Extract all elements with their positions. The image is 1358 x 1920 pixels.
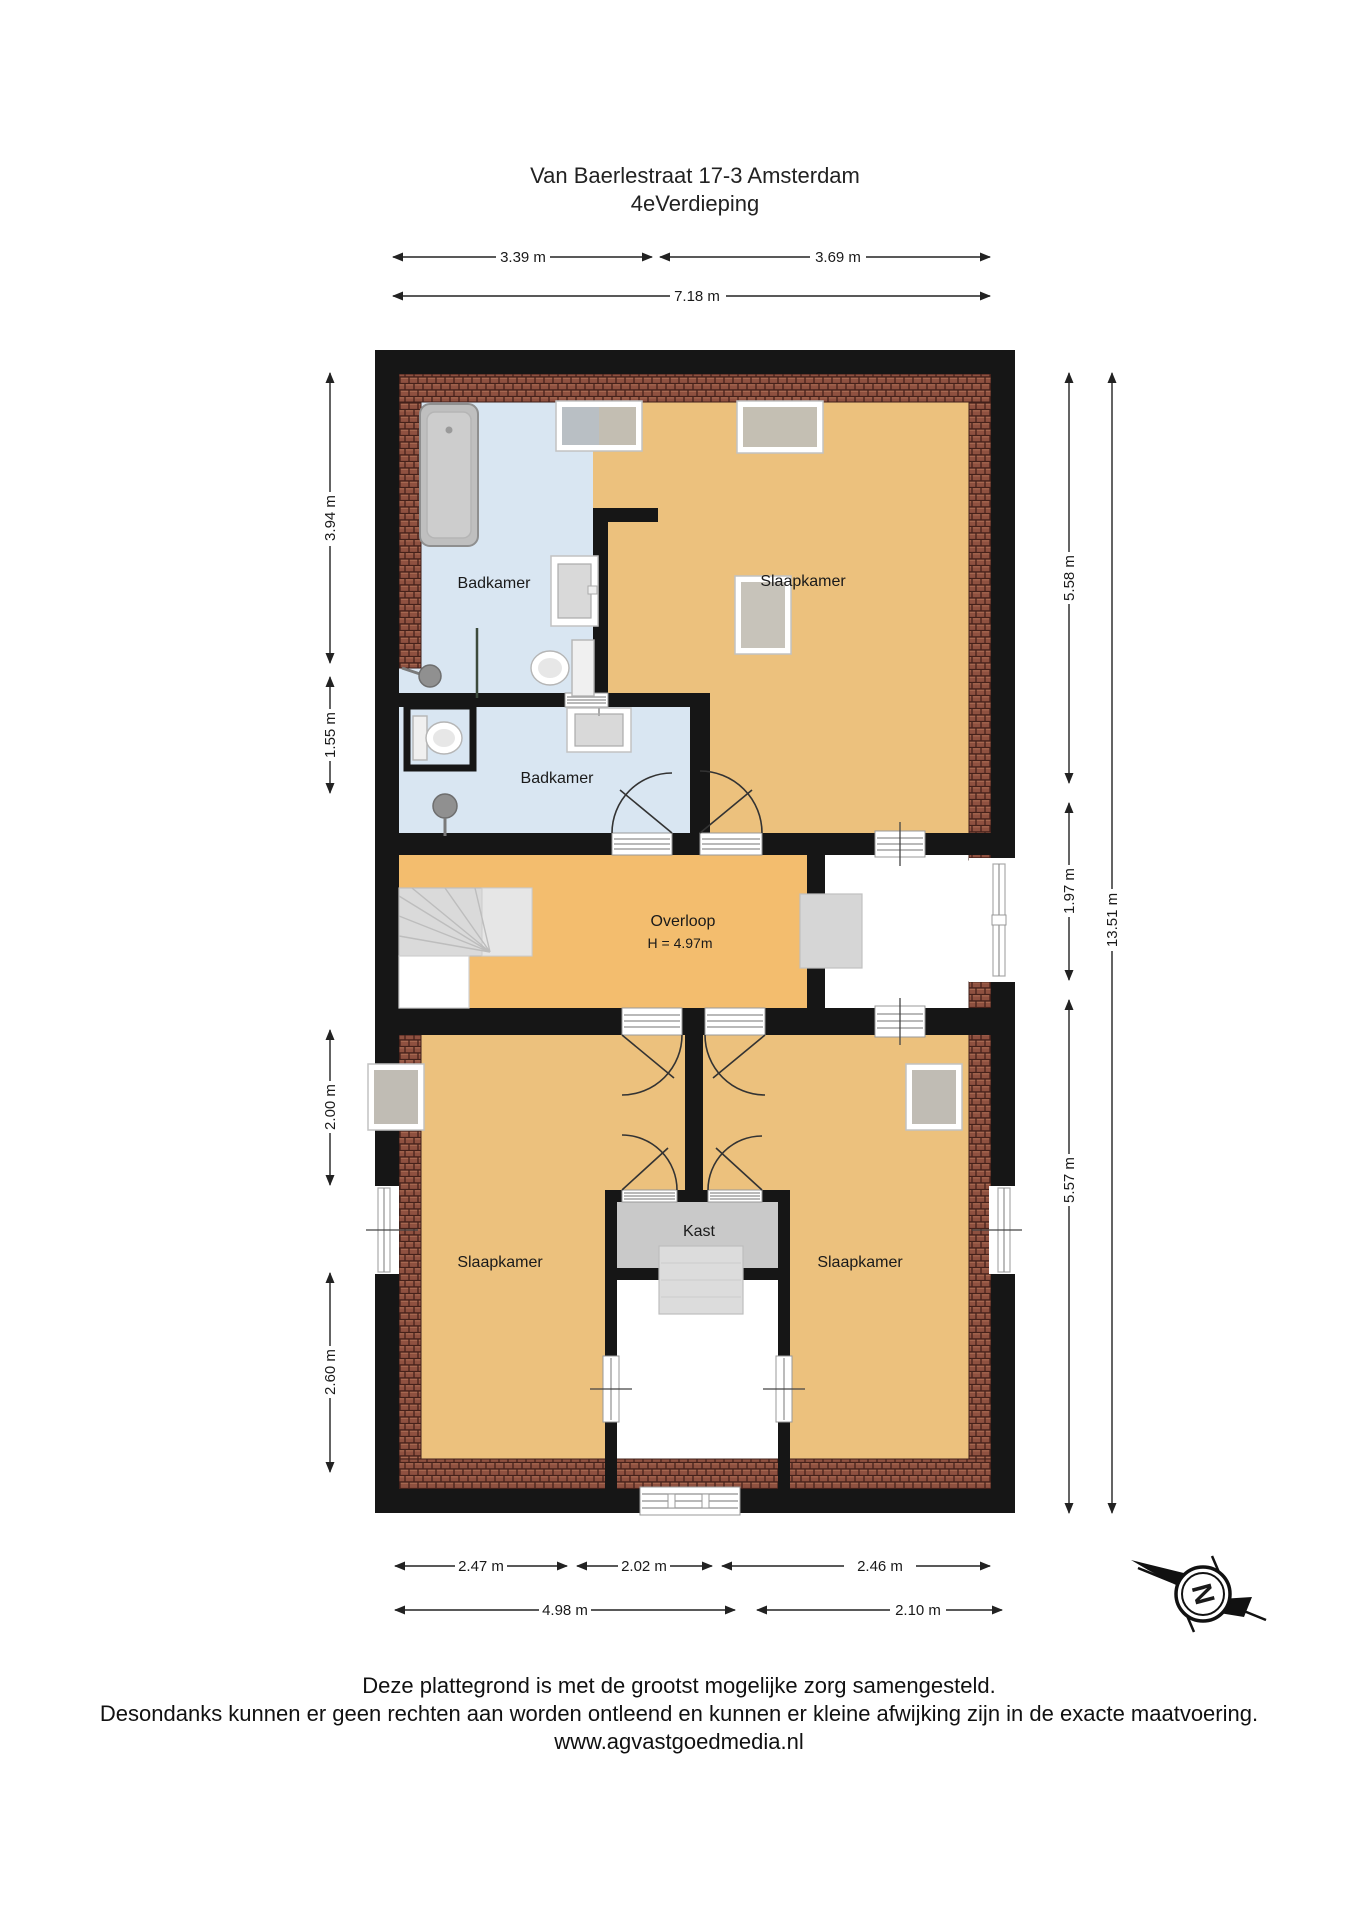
stair-landing-icon xyxy=(800,894,862,968)
svg-text:1.97 m: 1.97 m xyxy=(1061,868,1078,914)
plan-title: Van Baerlestraat 17-3 Amsterdam xyxy=(530,163,860,188)
wall-mid-b2 xyxy=(682,1008,705,1035)
svg-text:4.98 m: 4.98 m xyxy=(542,1602,588,1619)
label-overloop: Overloop xyxy=(651,913,716,930)
svg-text:3.39 m: 3.39 m xyxy=(500,249,546,266)
wall-void-right xyxy=(778,1190,790,1489)
floorplan-page: Van Baerlestraat 17-3 Amsterdam 4eVerdie… xyxy=(0,0,1358,1920)
plan-subtitle: 4eVerdieping xyxy=(631,191,759,216)
wall-bath-divider2 xyxy=(608,693,690,707)
wall-bedroom-divider xyxy=(685,1035,703,1190)
wall-mid-b3 xyxy=(765,1008,875,1035)
wall-mid-a2 xyxy=(672,833,700,855)
svg-text:2.02 m: 2.02 m xyxy=(621,1558,667,1575)
wall-mid-a1 xyxy=(375,833,612,855)
roof-tiles-bottom xyxy=(399,1459,991,1489)
footer-website: www.agvastgoedmedia.nl xyxy=(553,1729,803,1754)
label-slaapkamer-links: Slaapkamer xyxy=(457,1254,543,1271)
roof-tiles-right-lower xyxy=(969,982,991,1459)
roof-tiles-left-upper xyxy=(399,402,421,668)
wall-bath-mid-right xyxy=(690,693,710,833)
wall-mid-b4 xyxy=(925,1008,991,1035)
svg-text:3.69 m: 3.69 m xyxy=(815,249,861,266)
wall-void-left xyxy=(605,1190,617,1489)
svg-text:2.00 m: 2.00 m xyxy=(322,1084,339,1130)
roof-window-rechts-icon xyxy=(906,1064,962,1130)
svg-text:5.57 m: 5.57 m xyxy=(1061,1157,1078,1203)
sink-mid-icon xyxy=(567,708,631,752)
wall-closet-bottom2 xyxy=(740,1268,790,1280)
footer-line-2: Desondanks kunnen er geen rechten aan wo… xyxy=(100,1701,1258,1726)
label-overloop-height: H = 4.97m xyxy=(648,935,713,951)
footer-line-1: Deze plattegrond is met de grootst mogel… xyxy=(362,1673,995,1698)
svg-text:2.47 m: 2.47 m xyxy=(458,1558,504,1575)
svg-text:3.94 m: 3.94 m xyxy=(322,495,339,541)
wall-closet-top2 xyxy=(677,1190,708,1202)
svg-text:2.46 m: 2.46 m xyxy=(857,1558,903,1575)
label-kast: Kast xyxy=(683,1223,716,1240)
svg-text:2.10 m: 2.10 m xyxy=(895,1602,941,1619)
wall-outer-left xyxy=(375,350,399,1513)
wall-mid-a4 xyxy=(925,833,991,855)
svg-text:1.55 m: 1.55 m xyxy=(322,712,339,758)
svg-text:7.18 m: 7.18 m xyxy=(674,288,720,305)
roof-tiles-right-upper xyxy=(969,402,991,860)
roof-tiles-top xyxy=(399,374,991,402)
floorplan-drawing: Van Baerlestraat 17-3 Amsterdam 4eVerdie… xyxy=(0,0,1358,1920)
wall-outer-top xyxy=(375,350,1015,374)
bathtub-icon xyxy=(420,404,478,546)
wall-mid-a3 xyxy=(762,833,875,855)
label-slaapkamer-top: Slaapkamer xyxy=(760,573,846,590)
wall-bath-top-h xyxy=(593,508,658,522)
svg-text:13.51 m: 13.51 m xyxy=(1104,893,1121,947)
svg-text:5.58 m: 5.58 m xyxy=(1061,555,1078,601)
label-badkamer-mid: Badkamer xyxy=(521,770,595,787)
wall-mid-b1 xyxy=(375,1008,622,1035)
window-bottom-center xyxy=(640,1487,740,1515)
roof-window-links-icon xyxy=(368,1064,424,1130)
roof-window-top-1-icon xyxy=(556,401,642,451)
window-right-large xyxy=(969,858,1015,982)
roof-window-top-2-icon xyxy=(737,401,823,453)
label-slaapkamer-rechts: Slaapkamer xyxy=(817,1254,903,1271)
svg-text:2.60 m: 2.60 m xyxy=(322,1349,339,1395)
wall-closet-bottom1 xyxy=(605,1268,660,1280)
label-badkamer-top: Badkamer xyxy=(458,575,532,592)
sink-top-icon xyxy=(551,556,598,626)
stair-shaft-icon xyxy=(659,1246,743,1314)
